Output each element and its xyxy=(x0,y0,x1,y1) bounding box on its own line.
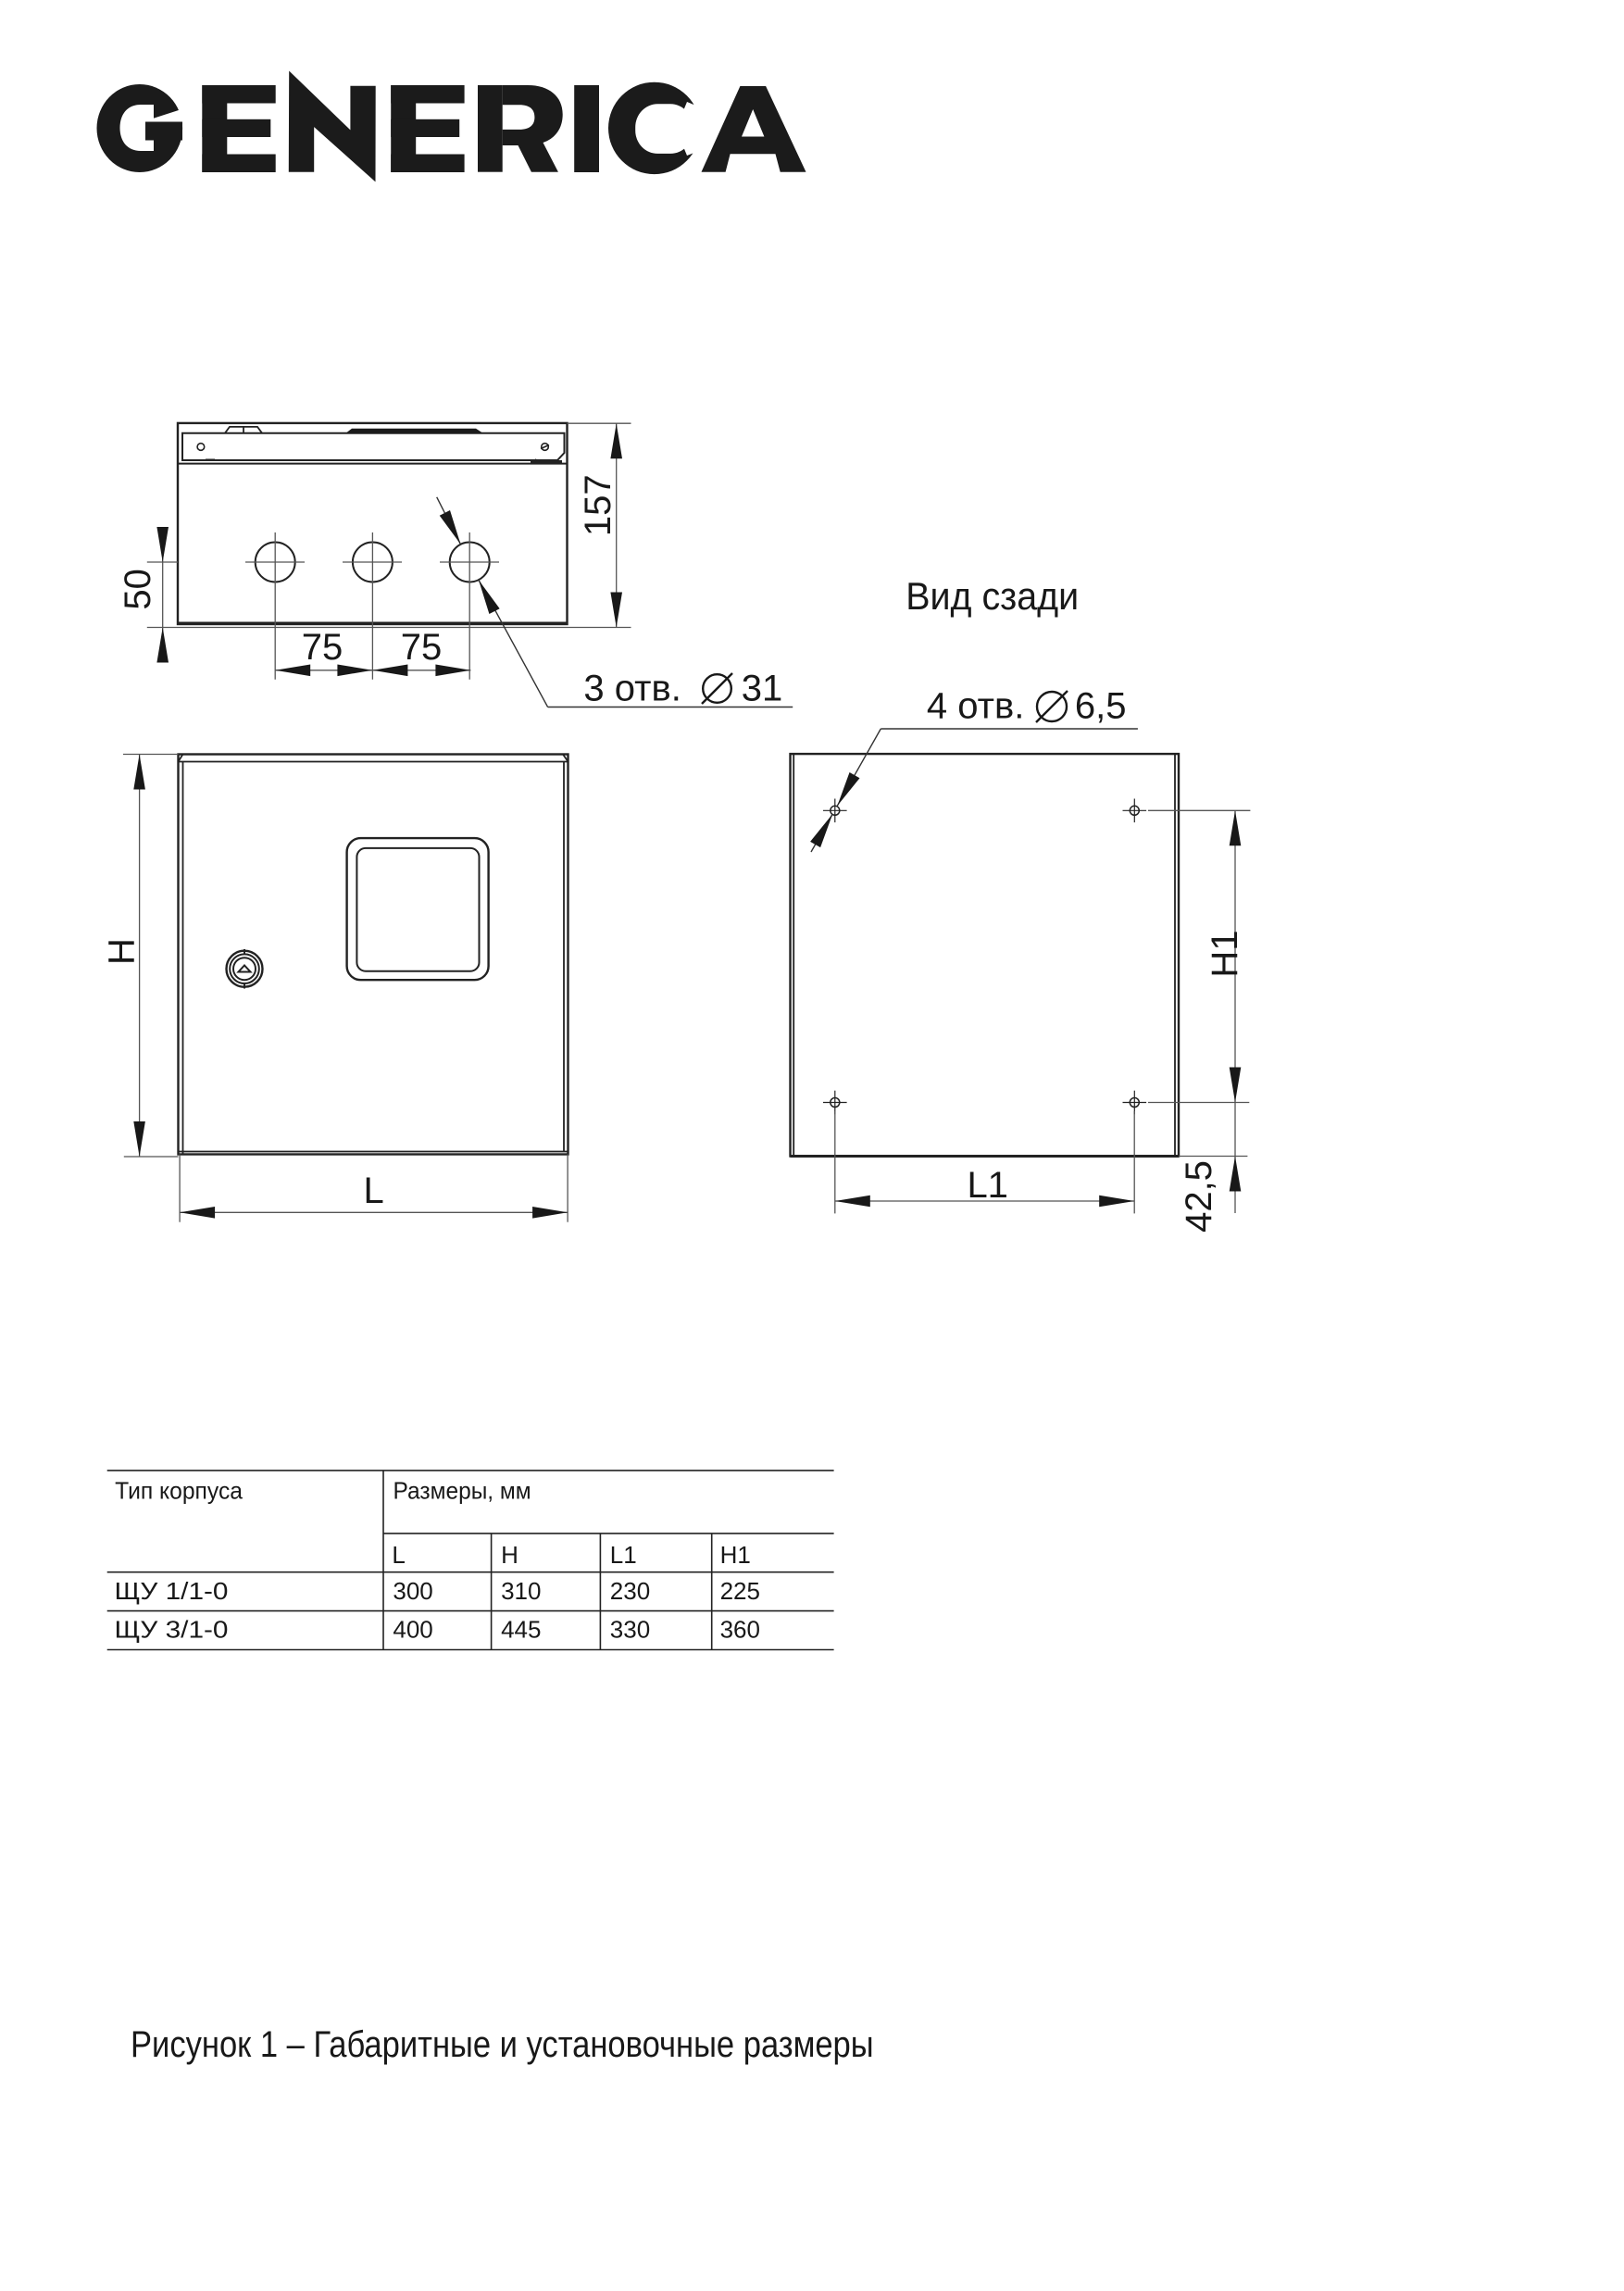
svg-text:50: 50 xyxy=(118,569,158,610)
svg-text:31: 31 xyxy=(742,669,783,709)
svg-text:225: 225 xyxy=(720,1577,760,1605)
svg-text:Рисунок 1 – Габаритные и устан: Рисунок 1 – Габаритные и установочные ра… xyxy=(131,2024,874,2065)
svg-text:ЩУ 3/1-0: ЩУ 3/1-0 xyxy=(115,1616,229,1644)
svg-text:L: L xyxy=(363,1171,383,1211)
svg-text:L: L xyxy=(392,1541,405,1569)
svg-text:ЩУ 1/1-0: ЩУ 1/1-0 xyxy=(115,1577,229,1605)
svg-text:330: 330 xyxy=(610,1616,650,1644)
svg-text:L1: L1 xyxy=(610,1541,637,1569)
svg-text:H1: H1 xyxy=(720,1541,751,1569)
svg-text:75: 75 xyxy=(302,627,344,668)
svg-text:300: 300 xyxy=(393,1577,432,1605)
svg-text:310: 310 xyxy=(501,1577,541,1605)
svg-text:75: 75 xyxy=(401,627,443,668)
svg-text:Размеры, мм: Размеры, мм xyxy=(394,1477,531,1505)
svg-text:230: 230 xyxy=(610,1577,650,1605)
svg-text:360: 360 xyxy=(720,1616,760,1644)
svg-text:400: 400 xyxy=(393,1616,432,1644)
svg-text:H1: H1 xyxy=(1205,930,1245,977)
svg-text:Тип корпуса: Тип корпуса xyxy=(115,1476,243,1504)
svg-text:Вид сзади: Вид сзади xyxy=(906,574,1079,618)
svg-text:H: H xyxy=(102,938,143,965)
svg-text:4 отв.: 4 отв. xyxy=(927,686,1024,727)
svg-text:L1: L1 xyxy=(967,1165,1008,1206)
svg-text:3 отв.: 3 отв. xyxy=(583,669,681,709)
svg-text:445: 445 xyxy=(501,1616,541,1644)
svg-text:H: H xyxy=(501,1541,518,1569)
svg-text:42,5: 42,5 xyxy=(1179,1160,1219,1233)
svg-text:6,5: 6,5 xyxy=(1075,686,1127,727)
svg-text:157: 157 xyxy=(578,474,618,536)
